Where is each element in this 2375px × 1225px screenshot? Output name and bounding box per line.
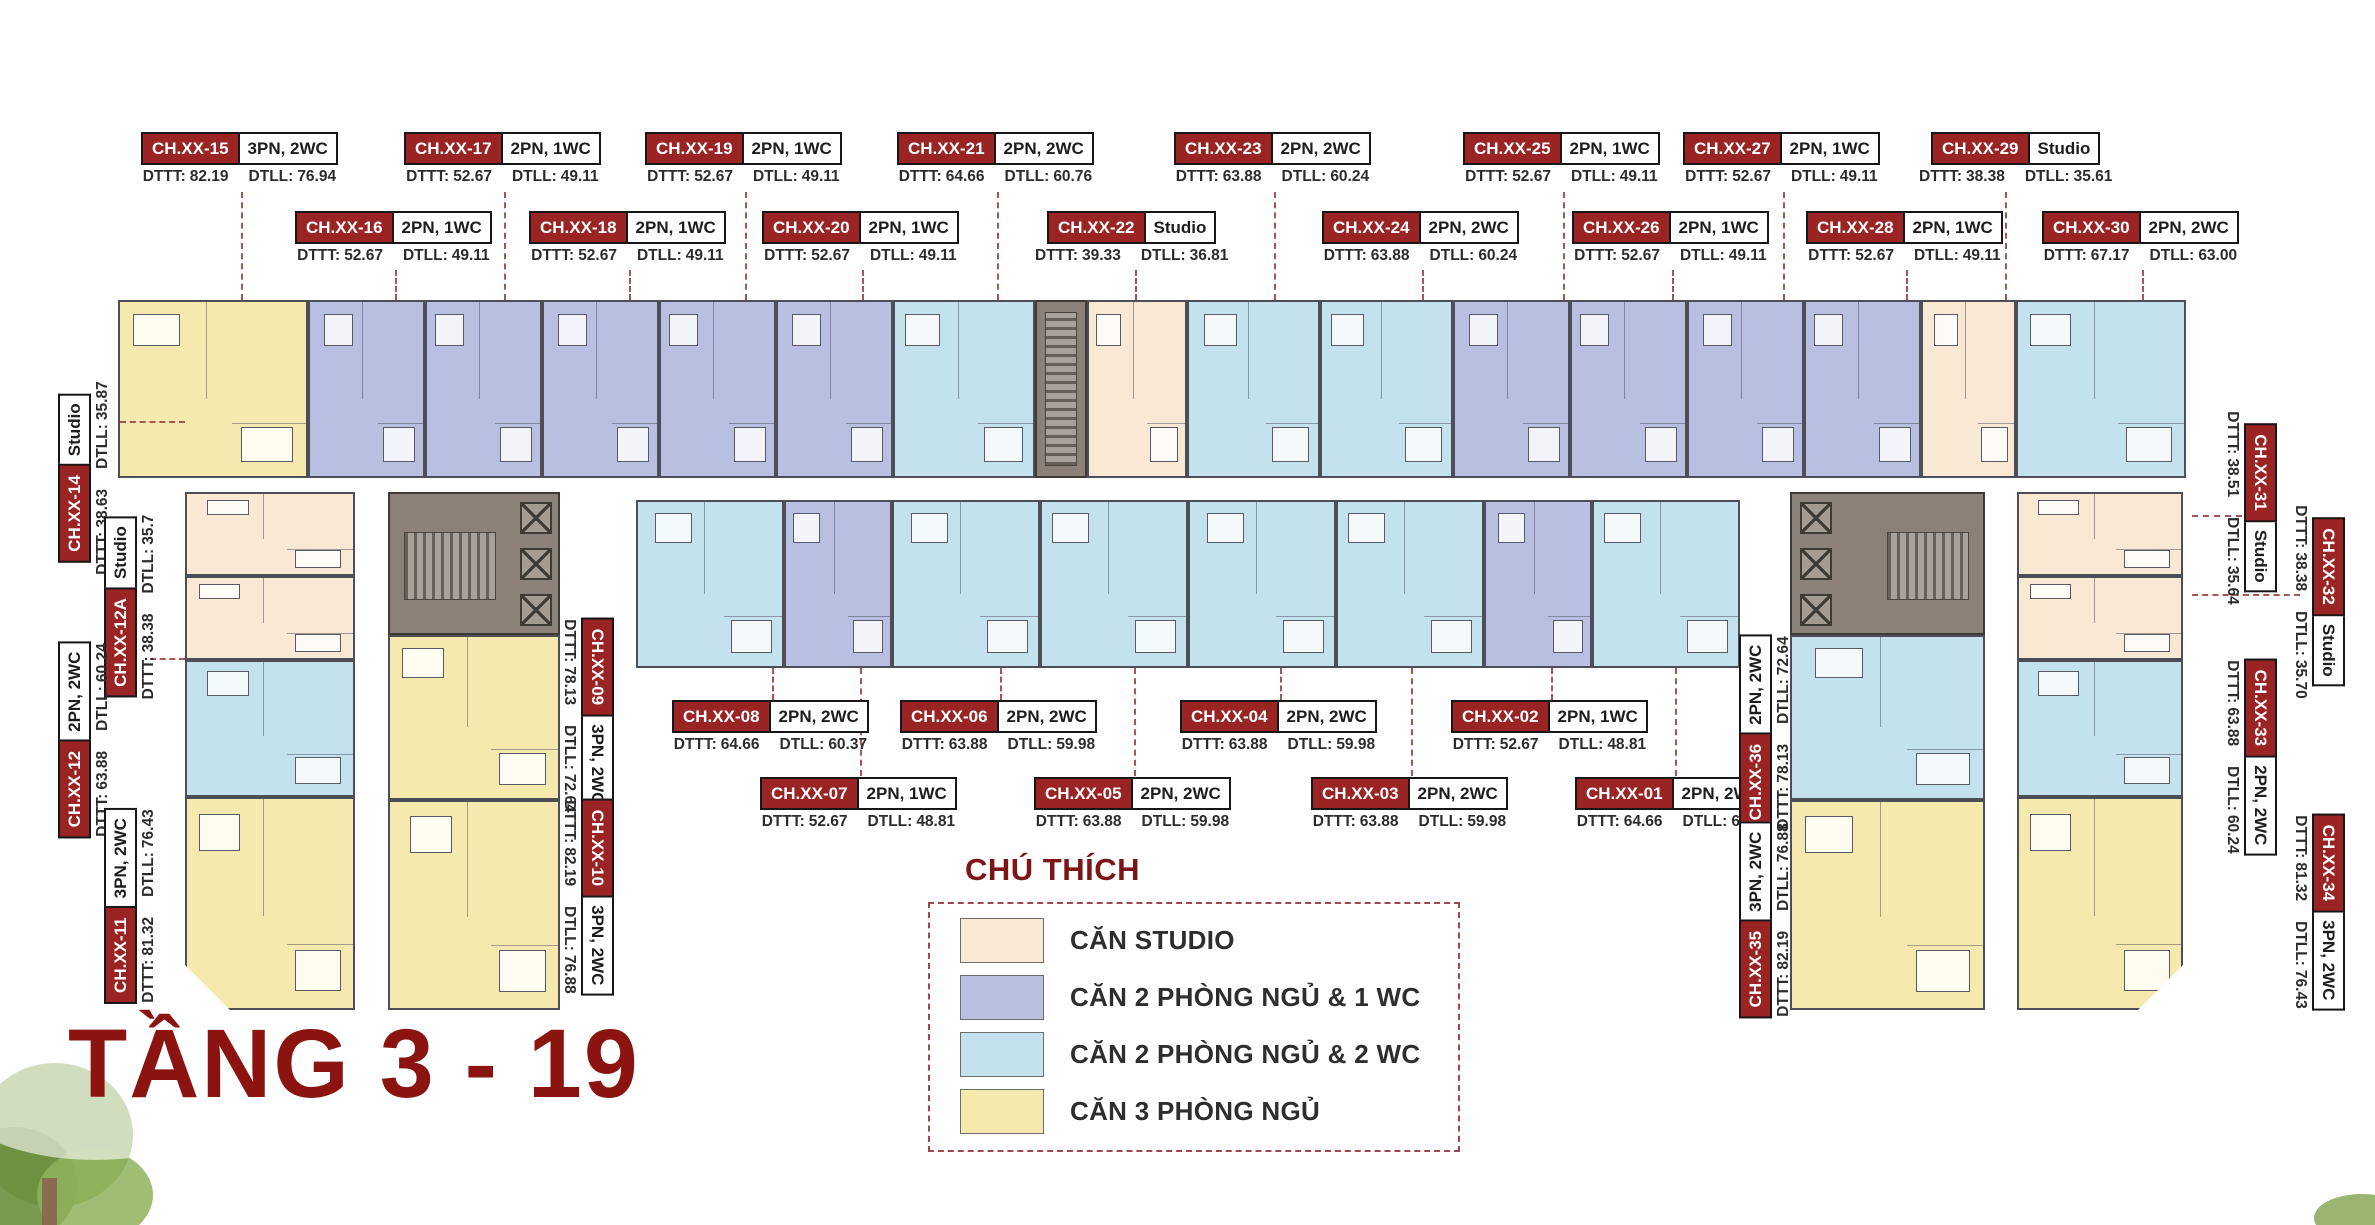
unit-type: 2PN, 2WC [1739,635,1772,733]
furniture-icon [500,427,533,462]
dtll-value: 49.11 [686,247,724,264]
unit-id-badge: CH.XX-04 [1180,700,1279,733]
unit-label-ch-xx-34: CH.XX-343PN, 2WCDTTT:81.32DTLL:76.43 [2291,814,2345,1011]
dttt-prefix: DTTT: [1324,247,1367,264]
dtll-prefix: DTLL: [1683,813,1728,830]
interior-wall [263,494,264,539]
dttt-prefix: DTTT: [764,247,807,264]
unit-dttt: DTTT:52.67 [647,168,733,186]
unit-dttt: DTTT:81.32 [140,917,158,1003]
dttt-value: 63.88 [2224,707,2241,746]
dtll-prefix: DTLL: [1141,247,1186,264]
interior-wall [1680,616,1738,617]
unit-dtll: DTLL:49.11 [403,247,490,265]
interior-wall [729,423,774,424]
unit-label-ch-xx-20: CH.XX-202PN, 1WCDTTT:52.67DTLL:49.11 [762,211,959,265]
unit-type: 2PN, 1WC [394,211,492,244]
unit-id-badge: CH.XX-08 [672,700,771,733]
unit-type: 2PN, 2WC [771,700,869,733]
unit-zone-ch-xx-12 [185,660,355,797]
interior-wall [1381,302,1382,399]
unit-dtll: DTLL:59.98 [1419,813,1507,831]
unit-type: 3PN, 2WC [240,132,338,165]
interior-wall [1548,616,1590,617]
dttt-value: 52.67 [1732,168,1771,185]
dtll-prefix: DTLL: [1142,813,1187,830]
unit-label-ch-xx-02: CH.XX-022PN, 1WCDTTT:52.67DTLL:48.81 [1451,700,1648,754]
unit-type: Studio [58,393,91,464]
dttt-prefix: DTTT: [1919,168,1962,185]
unit-id-badge: CH.XX-24 [1322,211,1421,244]
interior-wall [1256,502,1257,594]
dttt-value: 63.88 [1229,736,1268,753]
unit-dtll: DTLL:49.11 [1791,168,1878,186]
interior-wall [1741,302,1742,399]
leader-line [745,192,747,300]
unit-type: 2PN, 2WC [1273,132,1371,165]
unit-type: 2PN, 1WC [1562,132,1660,165]
unit-dttt: DTTT:38.38 [2291,505,2309,591]
unit-zone-ch-xx-03 [1336,500,1484,668]
unit-zone-ch-xx-09 [388,635,560,800]
unit-id-badge: CH.XX-15 [141,132,240,165]
dttt-value: 63.88 [1083,813,1122,830]
furniture-icon [1916,950,1970,991]
interior-wall [232,423,306,424]
dttt-prefix: DTTT: [297,247,340,264]
unit-type: Studio [2030,132,2101,165]
furniture-icon [2030,314,2072,346]
unit-label-ch-xx-05: CH.XX-052PN, 2WCDTTT:63.88DTLL:59.98 [1034,777,1231,831]
elevator-icon [1800,594,1832,626]
furniture-icon [1052,513,1089,543]
unit-dttt: DTTT:78.13 [1775,744,1793,830]
unit-dttt: DTTT:52.67 [1685,168,1771,186]
interior-wall [491,945,558,946]
unit-zone-ch-xx-26 [1570,300,1687,478]
furniture-icon [324,314,353,346]
leader-line [1280,668,1282,700]
unit-dtll: DTLL:35.61 [2025,168,2113,186]
unit-label-ch-xx-30: CH.XX-302PN, 2WCDTTT:67.17DTLL:63.00 [2042,211,2239,265]
dttt-value: 38.38 [140,614,157,653]
dtll-prefix: DTLL: [561,725,578,770]
legend-label: CĂN STUDIO [1070,925,1235,956]
furniture-icon [792,314,821,346]
unit-dtll: DTLL:60.76 [1005,168,1093,186]
interior-wall [612,423,657,424]
interior-wall [1880,637,1881,727]
furniture-icon [1272,427,1309,462]
stairs-top-core [1035,300,1087,478]
interior-wall [958,302,959,399]
unit-type: 2PN, 1WC [1671,211,1769,244]
dtll-prefix: DTLL: [1775,679,1792,724]
unit-id-badge: CH.XX-01 [1575,777,1674,810]
leader-line [2142,270,2144,300]
furniture-icon [2030,584,2071,600]
dtll-prefix: DTLL: [1680,247,1725,264]
dtll-prefix: DTLL: [140,549,157,594]
dttt-value: 82.19 [1775,931,1792,970]
legend-item-3pn: CĂN 3 PHÒNG NGỦ [960,1089,1320,1134]
dttt-value: 38.38 [1966,168,2005,185]
legend-label: CĂN 2 PHÒNG NGỦ & 2 WC [1070,1039,1420,1070]
furniture-icon [1934,314,1958,346]
unit-label-ch-xx-18: CH.XX-182PN, 1WCDTTT:52.67DTLL:49.11 [529,211,726,265]
core-right-core [1790,492,1985,635]
furniture-icon [987,620,1028,653]
unit-label-ch-xx-08: CH.XX-082PN, 2WCDTTT:64.66DTLL:60.37 [672,700,869,754]
interior-wall [206,302,207,399]
dttt-value: 52.67 [1500,736,1539,753]
dtll-value: 60.24 [1478,247,1517,264]
unit-type: 2PN, 1WC [628,211,726,244]
unit-type: 2PN, 2WC [1421,211,1519,244]
interior-wall [2116,754,2181,755]
dtll-prefix: DTLL: [1791,168,1836,185]
unit-label-wrap-ch-xx-36: CH.XX-362PN, 2WCDTTT:78.13DTLL:72.64 [1739,635,1793,832]
interior-wall [713,302,714,399]
legend-swatch-2pn1wc [960,975,1044,1020]
unit-id-badge: CH.XX-26 [1572,211,1671,244]
furniture-icon [984,427,1023,462]
dttt-value: 52.67 [1512,168,1551,185]
interior-wall [495,423,540,424]
unit-zone-ch-xx-04 [1188,500,1336,668]
interior-wall [596,302,597,399]
leader-line [629,270,631,300]
leader-line [120,421,185,423]
dtll-value: 48.81 [916,813,955,830]
unit-dttt: DTTT:63.88 [1182,736,1268,754]
furniture-icon [410,816,452,853]
dttt-prefix: DTTT: [561,619,578,662]
unit-zone-ch-xx-30 [2016,300,2186,478]
unit-type: 3PN, 2WC [2312,912,2345,1010]
unit-id-badge: CH.XX-27 [1683,132,1782,165]
unit-label-wrap-ch-xx-35: CH.XX-353PN, 2WCDTTT:82.19DTLL:76.88 [1739,822,1793,1019]
legend-label: CĂN 2 PHÒNG NGỦ & 1 WC [1070,982,1420,1013]
dtll-value: 59.98 [1336,736,1375,753]
legend-label: CĂN 3 PHÒNG NGỦ [1070,1096,1320,1127]
legend-item-2pn2wc: CĂN 2 PHÒNG NGỦ & 2 WC [960,1032,1420,1077]
unit-type: 2PN, 1WC [1550,700,1648,733]
dtll-value: 76.88 [561,955,578,994]
dttt-value: 81.32 [2292,862,2309,901]
dtll-prefix: DTLL: [1775,866,1792,911]
unit-id-badge: CH.XX-06 [900,700,999,733]
furniture-icon [1204,314,1237,346]
dttt-prefix: DTTT: [140,960,157,1003]
unit-dtll: DTLL:60.37 [780,736,868,754]
furniture-icon [295,550,342,567]
unit-type: 2PN, 1WC [861,211,959,244]
unit-id-badge: CH.XX-10 [581,799,614,898]
interior-wall [1404,502,1405,594]
interior-wall [1523,423,1568,424]
interior-wall [362,302,363,399]
furniture-icon [1815,648,1863,677]
dttt-prefix: DTTT: [1775,974,1792,1017]
unit-dttt: DTTT:52.67 [1453,736,1539,754]
unit-id-badge: CH.XX-12 [58,740,91,839]
interior-wall [378,423,423,424]
dttt-prefix: DTTT: [1176,168,1219,185]
unit-zone-ch-xx-19 [659,300,776,478]
leader-line [862,270,864,300]
furniture-icon [793,513,820,543]
furniture-icon [499,950,546,991]
unit-type: 2PN, 2WC [999,700,1097,733]
dttt-prefix: DTTT: [2292,505,2309,548]
furniture-icon [1879,427,1912,462]
furniture-icon [617,427,650,462]
unit-label-ch-xx-09: CH.XX-093PN, 2WCDTTT:78.13DTLL:72.64 [560,618,614,815]
unit-id-badge: CH.XX-17 [404,132,503,165]
unit-dttt: DTTT:52.67 [531,247,617,265]
dttt-value: 82.19 [561,847,578,886]
furniture-icon [1553,620,1583,653]
interior-wall [980,616,1038,617]
unit-zone-ch-xx-16 [308,300,425,478]
dttt-value: 78.13 [1775,744,1792,783]
dtll-prefix: DTLL: [2292,611,2309,656]
unit-dtll: DTLL:63.00 [2150,247,2238,265]
unit-dtll: DTLL:72.64 [1775,636,1793,724]
interior-wall [1978,423,2014,424]
unit-zone-ch-xx-20 [776,300,893,478]
unit-label-ch-xx-32: CH.XX-32StudioDTTT:38.38DTLL:35.70 [2291,505,2345,698]
dtll-value: 49.11 [1840,168,1878,185]
dtll-prefix: DTLL: [2025,168,2070,185]
interior-wall [1266,423,1318,424]
interior-wall [287,633,353,634]
unit-dttt: DTTT:52.67 [297,247,383,265]
unit-label-ch-xx-16: CH.XX-162PN, 1WCDTTT:52.67DTLL:49.11 [295,211,492,265]
unit-label-wrap-ch-xx-12a: CH.XX-12AStudioDTTT:38.38DTLL:35.7 [104,515,158,700]
unit-dttt: DTTT:81.32 [2291,815,2309,901]
dtll-value: 59.98 [1467,813,1506,830]
furniture-icon [1207,513,1244,543]
furniture-icon [2126,427,2173,462]
unit-dttt: DTTT:82.19 [143,168,229,186]
unit-dtll: DTLL:76.88 [560,906,578,994]
dtll-prefix: DTLL: [2224,517,2241,562]
unit-id-badge: CH.XX-30 [2042,211,2141,244]
furniture-icon [669,314,698,346]
unit-id-badge: CH.XX-31 [2244,423,2277,522]
unit-dtll: DTLL:49.11 [1680,247,1767,265]
unit-dtll: DTLL:49.11 [637,247,724,265]
furniture-icon [1405,427,1442,462]
dttt-prefix: DTTT: [1577,813,1620,830]
furniture-icon [133,314,180,346]
dttt-prefix: DTTT: [899,168,942,185]
unit-label-ch-xx-19: CH.XX-192PN, 1WCDTTT:52.67DTLL:49.11 [645,132,842,186]
unit-dtll: DTLL:48.81 [1559,736,1647,754]
dtll-value: 35.70 [2292,660,2309,699]
unit-label-ch-xx-35: CH.XX-353PN, 2WCDTTT:82.19DTLL:76.88 [1739,822,1793,1019]
unit-label-ch-xx-17: CH.XX-172PN, 1WCDTTT:52.67DTLL:49.11 [404,132,601,186]
dttt-value: 81.32 [140,917,157,956]
furniture-icon [655,513,692,543]
leader-line [1906,270,1908,300]
leader-line [1422,270,1424,300]
furniture-icon [2030,814,2071,852]
unit-dtll: DTLL:35.70 [2291,611,2309,699]
unit-type: Studio [2244,522,2277,593]
unit-dttt: DTTT:38.38 [140,614,158,700]
dtll-value: 63.00 [2198,247,2237,264]
unit-id-badge: CH.XX-35 [1739,920,1772,1019]
elevator-icon [1800,548,1832,580]
interior-wall [1248,302,1249,399]
unit-dtll: DTLL:59.98 [1288,736,1376,754]
unit-dtll: DTLL:49.11 [1914,247,2001,265]
unit-zone-ch-xx-11 [185,797,355,1010]
interior-wall [1624,302,1625,399]
furniture-icon [1916,753,1970,786]
unit-dttt: DTTT:52.67 [1808,247,1894,265]
unit-zone-ch-xx-36 [1790,635,1985,800]
interior-wall [1880,802,1881,917]
unit-zone-ch-xx-06 [892,500,1040,668]
furniture-icon [1687,620,1728,653]
dttt-value: 39.33 [1082,247,1121,264]
furniture-icon [2124,550,2170,567]
unit-label-ch-xx-25: CH.XX-252PN, 1WCDTTT:52.67DTLL:49.11 [1463,132,1660,186]
unit-dtll: DTLL:59.98 [1008,736,1096,754]
unit-id-badge: CH.XX-11 [104,906,137,1004]
dttt-prefix: DTTT: [762,813,805,830]
unit-label-ch-xx-12a: CH.XX-12AStudioDTTT:38.38DTLL:35.7 [104,515,158,700]
dttt-prefix: DTTT: [674,736,717,753]
unit-zone-ch-xx-15 [118,300,308,478]
interior-wall [263,662,264,736]
furniture-icon [1150,427,1178,462]
furniture-icon [199,584,241,600]
unit-zone-ch-xx-28 [1804,300,1921,478]
furniture-icon [295,634,342,651]
unit-label-ch-xx-33: CH.XX-332PN, 2WCDTTT:63.88DTLL:60.24 [2223,659,2277,856]
furniture-icon [2124,950,2170,992]
stairs-icon [1045,312,1077,466]
dtll-value: 49.11 [1620,168,1658,185]
interior-wall [1907,749,1983,750]
dttt-prefix: DTTT: [1685,168,1728,185]
unit-label-wrap-ch-xx-10: CH.XX-103PN, 2WCDTTT:82.19DTLL:76.88 [560,799,614,996]
unit-zone-ch-xx-24 [1320,300,1453,478]
unit-zone-ch-xx-18 [542,300,659,478]
stairs-icon [1887,532,1969,600]
unit-dttt: DTTT:63.88 [2223,660,2241,746]
interior-wall [287,754,353,755]
dttt-value: 38.51 [2224,458,2241,497]
dtll-prefix: DTLL: [637,247,682,264]
interior-wall [467,637,468,727]
dtll-value: 60.24 [2224,815,2241,854]
dttt-prefix: DTTT: [1574,247,1617,264]
interior-wall [978,423,1033,424]
dttt-value: 63.88 [94,751,111,790]
interior-wall [1507,302,1508,399]
dttt-value: 64.66 [946,168,985,185]
legend-item-2pn1wc: CĂN 2 PHÒNG NGỦ & 1 WC [960,975,1420,1020]
furniture-icon [1580,314,1609,346]
legend-swatch-2pn2wc [960,1032,1044,1077]
interior-wall [263,578,264,623]
leader-line [1134,668,1136,776]
interior-wall [1874,423,1919,424]
unit-label-ch-xx-29: CH.XX-29StudioDTTT:38.38DTLL:35.61 [1919,132,2112,186]
interior-wall [1399,423,1451,424]
unit-type: 2PN, 2WC [2244,757,2277,855]
unit-type: 2PN, 1WC [1782,132,1880,165]
dttt-value: 64.66 [1624,813,1663,830]
unit-zone-ch-xx-10 [388,800,560,1010]
stairs-icon [404,532,496,600]
dttt-prefix: DTTT: [143,168,186,185]
dttt-value: 52.67 [1621,247,1660,264]
unit-dtll: DTLL:35.87 [94,381,112,469]
unit-id-badge: CH.XX-22 [1047,211,1146,244]
dttt-value: 78.13 [561,666,578,705]
dttt-value: 52.67 [811,247,850,264]
unit-type: 3PN, 2WC [581,897,614,995]
dtll-value: 59.98 [1056,736,1095,753]
unit-id-badge: CH.XX-19 [645,132,744,165]
interior-wall [1108,502,1109,594]
interior-wall [2116,633,2181,634]
unit-dttt: DTTT:64.66 [1577,813,1663,831]
dttt-prefix: DTTT: [2224,660,2241,703]
leader-line [241,192,243,300]
dttt-prefix: DTTT: [647,168,690,185]
interior-wall [1965,302,1966,399]
unit-label-wrap-ch-xx-34: CH.XX-343PN, 2WCDTTT:81.32DTLL:76.43 [2291,814,2345,1011]
dtll-value: 59.98 [1190,813,1229,830]
interior-wall [2094,662,2095,736]
unit-label-wrap-ch-xx-33: CH.XX-332PN, 2WCDTTT:63.88DTLL:60.24 [2223,659,2277,856]
unit-zone-ch-xx-34 [2017,797,2183,1010]
leader-line [1783,192,1785,300]
unit-id-badge: CH.XX-02 [1451,700,1550,733]
unit-type: 2PN, 1WC [503,132,601,165]
dttt-value: 52.67 [344,247,383,264]
dttt-value: 52.67 [578,247,617,264]
elevator-icon [520,502,552,534]
interior-wall [2094,578,2095,623]
unit-dtll: DTLL:59.98 [1142,813,1230,831]
unit-dtll: DTLL:49.11 [512,168,599,186]
unit-type: 2PN, 2WC [996,132,1094,165]
unit-dttt: DTTT:63.88 [1324,247,1410,265]
furniture-icon [1645,427,1678,462]
unit-label-wrap-ch-xx-32: CH.XX-32StudioDTTT:38.38DTLL:35.70 [2291,505,2345,698]
dtll-value: 49.11 [802,168,840,185]
furniture-icon [295,950,342,992]
furniture-icon [1096,314,1121,346]
furniture-icon [2038,671,2079,696]
dttt-prefix: DTTT: [2224,411,2241,454]
unit-id-badge: CH.XX-36 [1739,733,1772,832]
dtll-prefix: DTLL: [561,906,578,951]
unit-dttt: DTTT:63.88 [1176,168,1262,186]
dtll-prefix: DTLL: [753,168,798,185]
unit-type: 2PN, 2WC [1133,777,1231,810]
dtll-prefix: DTLL: [1005,168,1050,185]
